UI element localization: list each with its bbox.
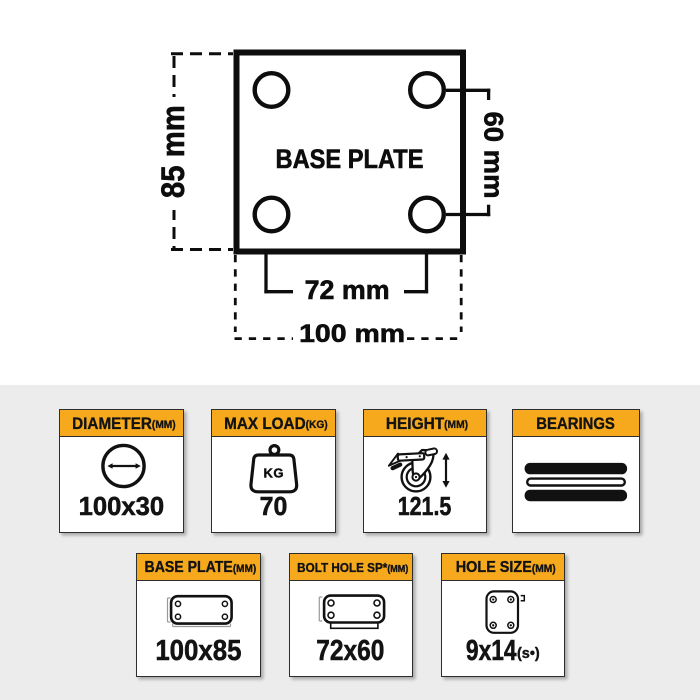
svg-text:85 mm: 85 mm (155, 105, 191, 198)
svg-text:KG: KG (264, 466, 285, 481)
svg-text:100 mm: 100 mm (299, 320, 405, 348)
svg-text:BASE PLATE: BASE PLATE (276, 144, 424, 174)
svg-text:60 mm: 60 mm (478, 112, 508, 199)
svg-text:72 mm: 72 mm (305, 275, 390, 305)
